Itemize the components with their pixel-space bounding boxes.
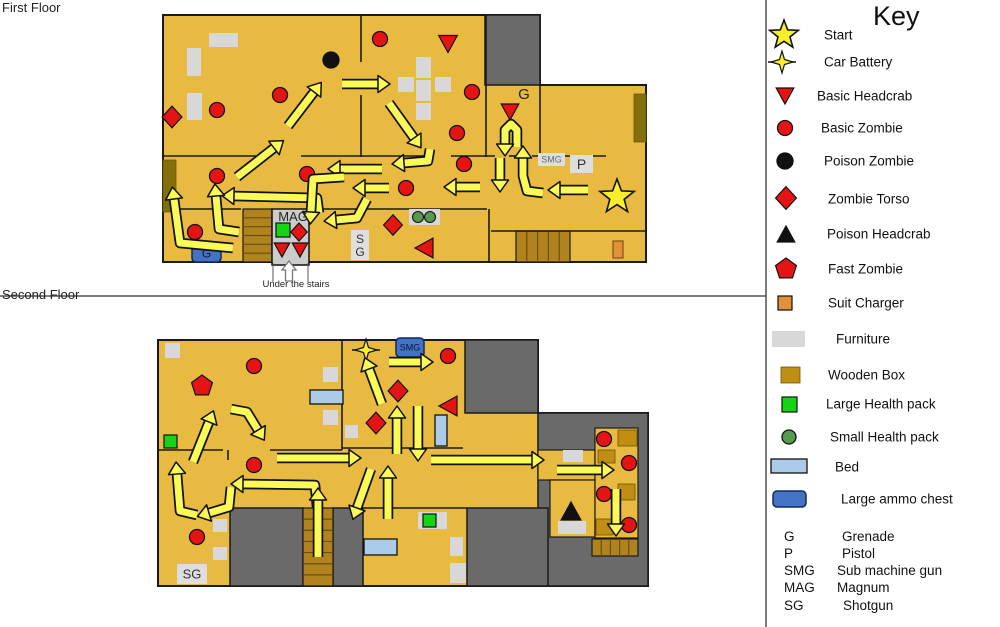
furniture	[323, 367, 338, 382]
legend-item-wooden-box: Wooden Box	[828, 368, 905, 383]
ammo-chest	[773, 491, 806, 507]
basic-zombie-marker	[373, 32, 388, 47]
wooden-box	[781, 367, 800, 383]
basic-zombie-marker	[622, 456, 637, 471]
stairs	[516, 231, 570, 262]
furniture	[165, 343, 180, 358]
legend-item-large-ammo-chest: Large ammo chest	[841, 492, 953, 507]
furniture	[563, 450, 583, 462]
weapon-name-mag: Magnum	[837, 580, 890, 595]
floor-area	[163, 15, 646, 262]
start-marker	[770, 20, 799, 47]
basic-zombie-marker	[188, 225, 203, 240]
legend-item-zombie-torso: Zombie Torso	[828, 192, 910, 207]
legend-item-bed: Bed	[835, 460, 859, 475]
basic-zombie-marker	[597, 487, 612, 502]
bed	[310, 390, 343, 404]
furniture	[558, 521, 586, 534]
basic-zombie-marker	[778, 121, 793, 136]
wooden-box	[598, 450, 615, 463]
wooden-box	[634, 94, 646, 142]
bed	[364, 539, 397, 555]
map-label: SMG	[541, 155, 562, 165]
weapon-name-smg: Sub machine gun	[837, 563, 942, 578]
map-label: SG	[183, 567, 202, 582]
large-health-pack	[423, 514, 436, 527]
furniture	[323, 410, 338, 425]
solid-block	[467, 508, 548, 586]
furniture	[416, 103, 431, 120]
furniture	[209, 33, 238, 47]
map-label: G	[518, 86, 530, 103]
solid-block	[230, 508, 303, 586]
basic-zombie-marker	[597, 432, 612, 447]
furniture	[187, 93, 202, 120]
legend-item-furniture: Furniture	[836, 332, 890, 347]
basic-zombie-marker	[247, 458, 262, 473]
furniture	[213, 519, 227, 532]
furniture	[398, 77, 414, 92]
basic-zombie-marker	[247, 359, 262, 374]
basic-zombie-marker	[441, 349, 456, 364]
furniture	[416, 57, 431, 78]
basic-zombie-marker	[210, 103, 225, 118]
large-health-pack	[782, 397, 797, 412]
poison-zombie-marker	[777, 153, 793, 169]
furniture	[450, 563, 466, 583]
basic-zombie-marker	[399, 181, 414, 196]
solid-block	[333, 508, 363, 586]
suit-charger	[778, 296, 792, 310]
weapon-code-g: G	[784, 529, 795, 544]
weapon-code-smg: SMG	[784, 563, 815, 578]
fast-zombie-marker	[776, 258, 797, 278]
furniture	[187, 48, 201, 76]
basic-zombie-marker	[465, 85, 480, 100]
furniture	[772, 331, 805, 347]
small-health-pack	[425, 212, 436, 223]
furniture	[435, 77, 451, 92]
small-health-pack	[782, 430, 796, 444]
legend-title: Key	[873, 1, 920, 32]
basic-zombie-marker	[190, 530, 205, 545]
weapon-code-p: P	[784, 546, 793, 561]
map-label: Under the stairs	[262, 279, 329, 290]
bed	[435, 415, 447, 446]
furniture	[450, 537, 463, 556]
legend-item-fast-zombie: Fast Zombie	[828, 262, 903, 277]
bed	[771, 459, 807, 473]
legend-item-basic-headcrab: Basic Headcrab	[817, 89, 912, 104]
legend-item-basic-zombie: Basic Zombie	[821, 121, 903, 136]
legend-item-suit-charger: Suit Charger	[828, 296, 904, 311]
basic-zombie-marker	[273, 88, 288, 103]
wooden-box	[618, 430, 637, 446]
weapon-code-sg: SG	[784, 598, 804, 613]
legend-item-start: Start	[824, 28, 853, 43]
weapon-name-sg: Shotgun	[843, 598, 893, 613]
map-label: S	[356, 232, 364, 246]
furniture	[416, 80, 431, 101]
stairs	[592, 539, 638, 556]
suit-charger	[613, 241, 623, 258]
ammo-chest-label: SMG	[400, 343, 421, 353]
legend-item-poison-headcrab: Poison Headcrab	[827, 227, 931, 242]
map-label: MAG	[278, 209, 308, 224]
car-battery-marker	[771, 51, 793, 73]
zombie-torso-marker	[776, 187, 797, 210]
legend-item-poison-zombie: Poison Zombie	[824, 154, 914, 169]
basic-zombie-marker	[210, 169, 225, 184]
poison-zombie-marker	[323, 52, 339, 68]
map-label: G	[355, 245, 364, 259]
weapon-code-mag: MAG	[784, 580, 815, 595]
map-label: P	[577, 156, 586, 172]
poison-headcrab-marker	[777, 226, 795, 242]
second-floor-label: Second Floor	[2, 287, 79, 302]
weapon-name-p: Pistol	[842, 546, 875, 561]
large-health-pack	[276, 223, 290, 237]
furniture	[213, 547, 227, 560]
first-floor-label: First Floor	[2, 0, 61, 15]
basic-zombie-marker	[457, 157, 472, 172]
basic-headcrab-marker	[776, 88, 794, 104]
large-health-pack	[164, 435, 177, 448]
solid-block	[485, 15, 540, 85]
legend-item-car-battery: Car Battery	[824, 55, 892, 70]
small-health-pack	[413, 212, 424, 223]
legend-item-large-health-pack: Large Health pack	[826, 397, 936, 412]
furniture	[345, 425, 358, 438]
basic-zombie-marker	[450, 126, 465, 141]
solid-block	[465, 340, 538, 413]
game-level-guide: GGMAGUnder the stairsSMGPSGSMGSG First F…	[0, 0, 1000, 627]
weapon-name-g: Grenade	[842, 529, 895, 544]
legend-item-small-health-pack: Small Health pack	[830, 430, 939, 445]
